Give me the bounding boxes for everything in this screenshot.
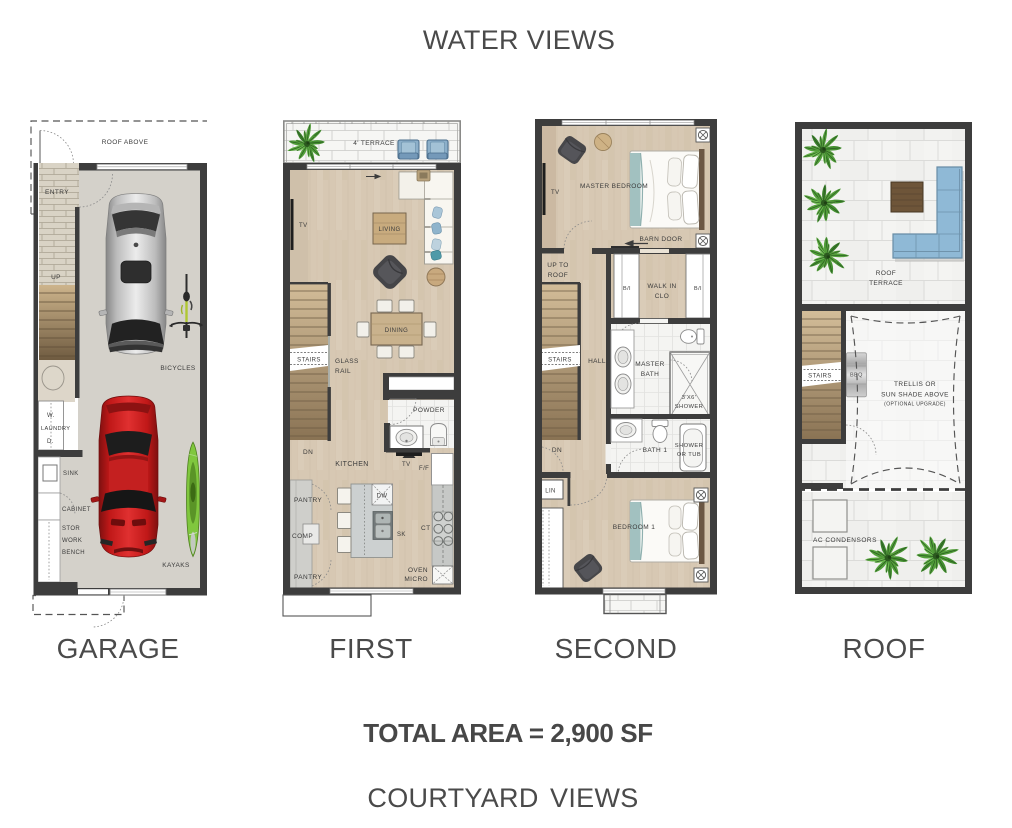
svg-text:POWDER: POWDER <box>413 407 445 414</box>
svg-text:STOR: STOR <box>62 526 80 532</box>
svg-text:ROOF: ROOF <box>548 272 568 279</box>
svg-text:BENCH: BENCH <box>62 550 85 556</box>
svg-text:MICRO: MICRO <box>404 576 428 583</box>
svg-text:LIN: LIN <box>545 489 556 495</box>
svg-text:FIRST: FIRST <box>329 633 412 664</box>
svg-text:LAUNDRY: LAUNDRY <box>41 426 70 432</box>
svg-text:WATER VIEWS: WATER VIEWS <box>423 25 615 55</box>
svg-text:ROOF: ROOF <box>843 633 926 664</box>
svg-text:COURTYARD VIEWS: COURTYARD VIEWS <box>367 783 638 813</box>
svg-text:SHOWER: SHOWER <box>675 404 704 410</box>
svg-text:BARN DOOR: BARN DOOR <box>640 236 683 243</box>
svg-text:KITCHEN: KITCHEN <box>335 461 369 468</box>
svg-text:STAIRS: STAIRS <box>297 358 321 364</box>
svg-text:SK: SK <box>397 532 406 538</box>
svg-text:GARAGE: GARAGE <box>57 633 180 664</box>
svg-text:DN: DN <box>552 447 562 454</box>
svg-text:WORK: WORK <box>62 538 82 544</box>
svg-text:D.: D. <box>47 439 54 445</box>
svg-text:STAIRS: STAIRS <box>808 374 832 380</box>
svg-text:CABINET: CABINET <box>62 507 91 513</box>
svg-text:PANTRY: PANTRY <box>294 497 322 504</box>
svg-text:HALL: HALL <box>588 358 606 365</box>
svg-text:W.: W. <box>47 413 55 419</box>
svg-text:GLASS: GLASS <box>335 358 359 365</box>
svg-text:BATH: BATH <box>641 371 659 378</box>
svg-text:SECOND: SECOND <box>555 633 678 664</box>
svg-text:B/I: B/I <box>694 286 702 292</box>
svg-text:SINK: SINK <box>63 471 79 477</box>
svg-text:B/I: B/I <box>623 286 631 292</box>
svg-text:KAYAKS: KAYAKS <box>162 562 190 569</box>
svg-text:TV: TV <box>551 190 559 196</box>
svg-text:MASTER BEDROOM: MASTER BEDROOM <box>580 183 648 190</box>
svg-text:(OPTIONAL UPGRADE): (OPTIONAL UPGRADE) <box>884 402 946 408</box>
svg-text:TRELLIS OR: TRELLIS OR <box>894 381 936 388</box>
svg-text:TERRACE: TERRACE <box>869 280 903 287</box>
svg-text:DN: DN <box>303 449 313 456</box>
svg-text:F/F: F/F <box>419 466 429 472</box>
svg-text:CT: CT <box>421 525 430 532</box>
svg-text:ROOF ABOVE: ROOF ABOVE <box>102 139 149 146</box>
svg-text:BEDROOM 1: BEDROOM 1 <box>613 524 656 531</box>
svg-text:MASTER: MASTER <box>635 361 665 368</box>
svg-text:4' TERRACE: 4' TERRACE <box>353 140 395 147</box>
svg-text:LIVING: LIVING <box>378 227 400 233</box>
svg-text:WALK IN: WALK IN <box>647 283 676 290</box>
svg-text:STAIRS: STAIRS <box>548 358 572 364</box>
svg-text:DW: DW <box>377 494 388 500</box>
svg-text:COMP: COMP <box>292 533 313 540</box>
svg-text:BICYCLES: BICYCLES <box>160 365 196 372</box>
svg-text:SUN SHADE ABOVE: SUN SHADE ABOVE <box>881 392 949 399</box>
svg-text:OR TUB: OR TUB <box>677 452 701 458</box>
svg-text:UP: UP <box>51 274 61 281</box>
svg-text:BATH 1: BATH 1 <box>643 447 668 454</box>
svg-text:DINING: DINING <box>385 328 408 334</box>
svg-text:ROOF: ROOF <box>876 270 896 277</box>
svg-text:3'X6': 3'X6' <box>682 395 697 401</box>
svg-text:CLO: CLO <box>655 293 670 300</box>
svg-text:RAIL: RAIL <box>335 368 351 375</box>
svg-text:OVEN: OVEN <box>408 567 428 574</box>
svg-text:TV: TV <box>402 462 410 468</box>
svg-text:SHOWER: SHOWER <box>675 443 704 449</box>
svg-text:TV: TV <box>299 223 307 229</box>
svg-text:AC CONDENSORS: AC CONDENSORS <box>813 537 877 544</box>
svg-text:ENTRY: ENTRY <box>45 189 69 196</box>
svg-text:UP TO: UP TO <box>547 262 569 269</box>
svg-text:TOTAL AREA = 2,900 SF: TOTAL AREA = 2,900 SF <box>363 718 652 748</box>
svg-text:PANTRY: PANTRY <box>294 574 322 581</box>
